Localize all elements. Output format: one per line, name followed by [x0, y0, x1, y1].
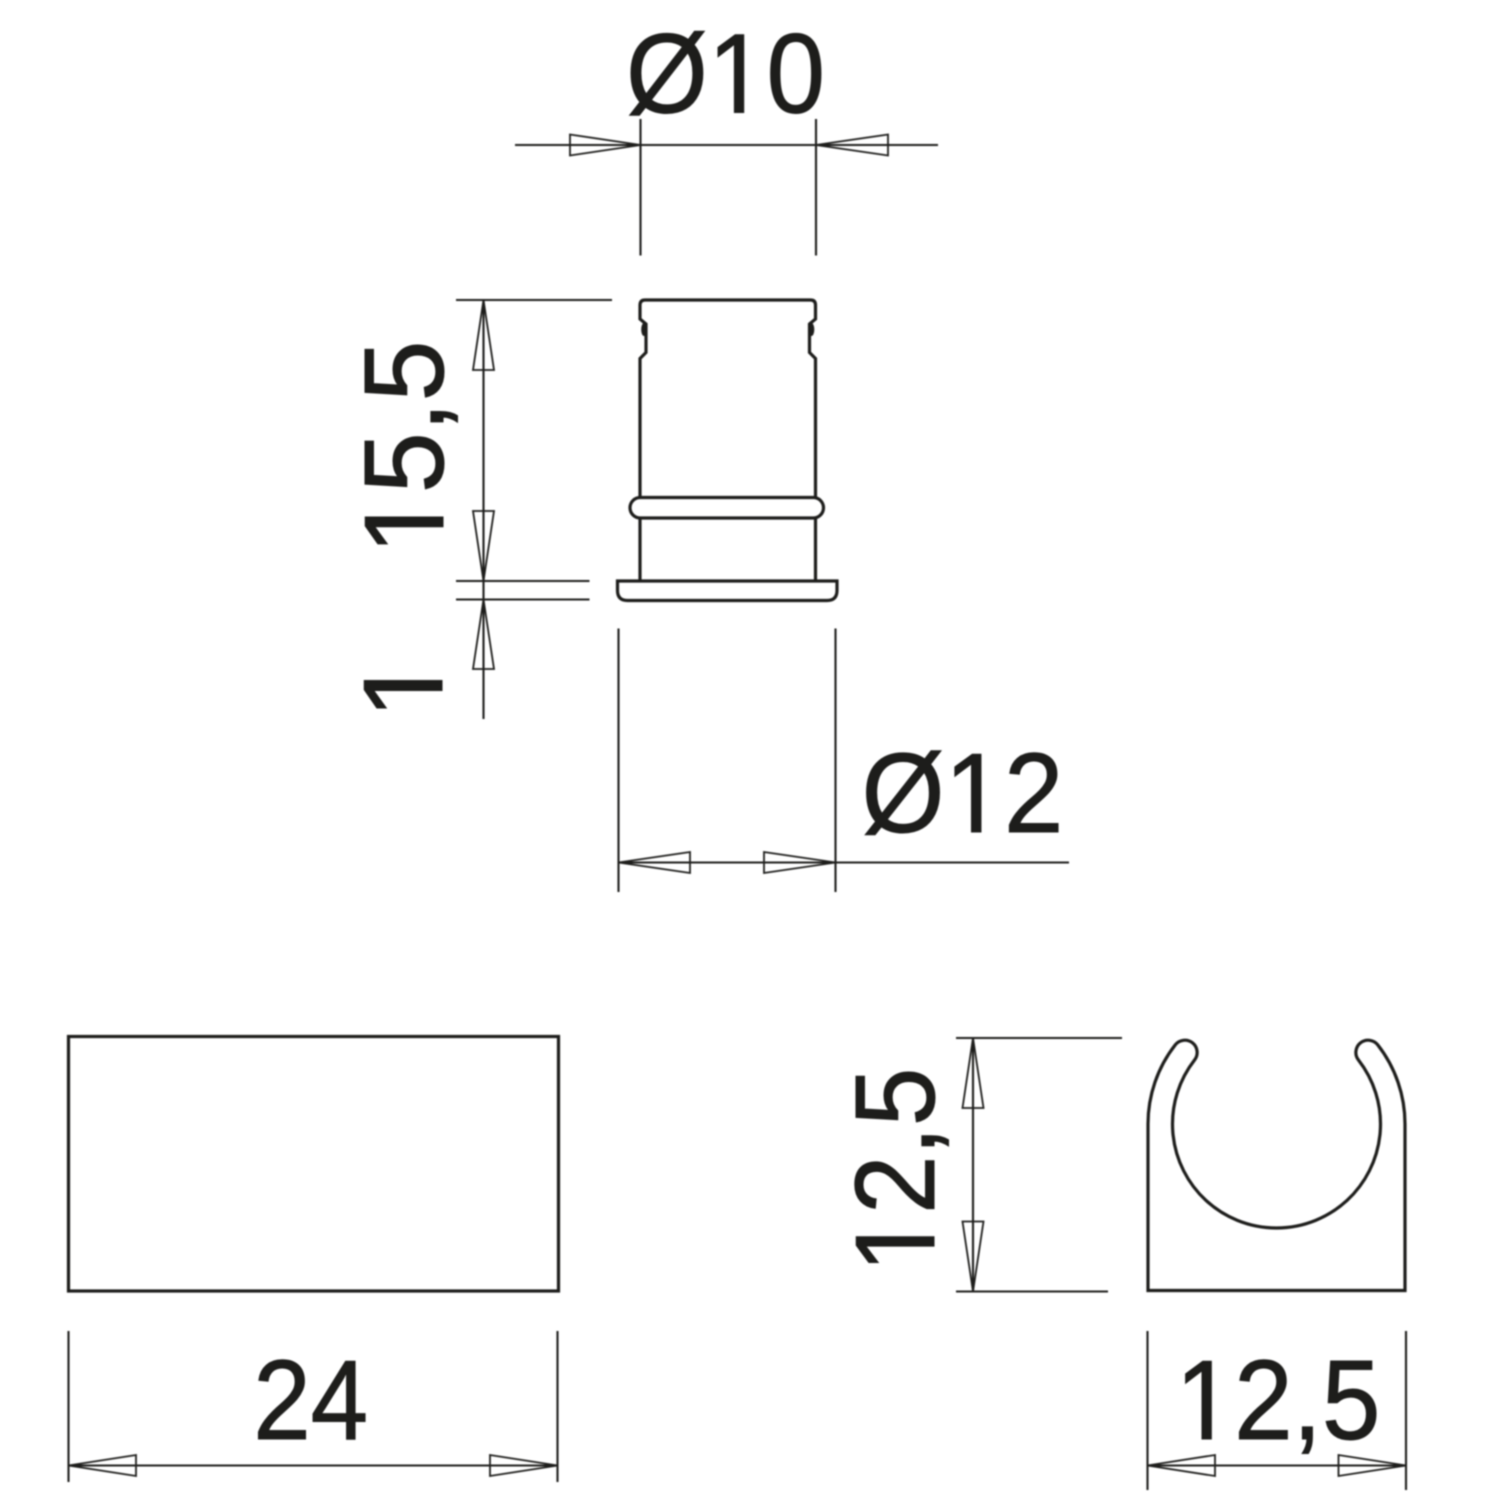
- svg-text:24: 24: [253, 1337, 368, 1463]
